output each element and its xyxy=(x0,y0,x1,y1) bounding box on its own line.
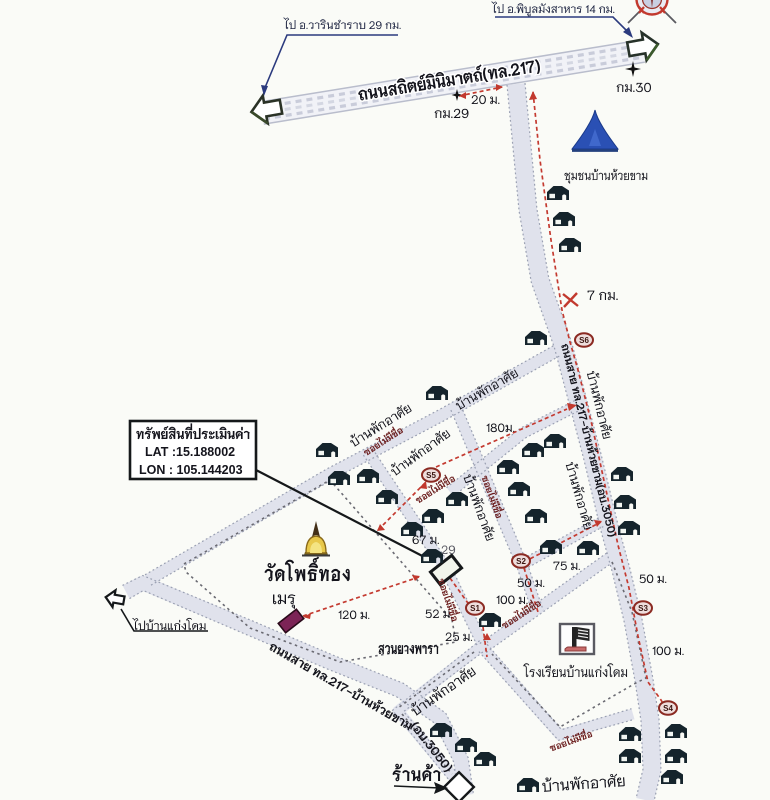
svg-text:LAT :15.188002: LAT :15.188002 xyxy=(145,445,235,459)
svg-text:LON : 105.144203: LON : 105.144203 xyxy=(139,463,243,477)
svg-text:S3: S3 xyxy=(638,604,648,613)
svg-text:S4: S4 xyxy=(663,704,673,713)
svg-text:S5: S5 xyxy=(426,471,436,480)
svg-text:S1: S1 xyxy=(470,604,480,613)
svg-text:S6: S6 xyxy=(579,336,589,345)
svg-text:S2: S2 xyxy=(516,557,526,566)
